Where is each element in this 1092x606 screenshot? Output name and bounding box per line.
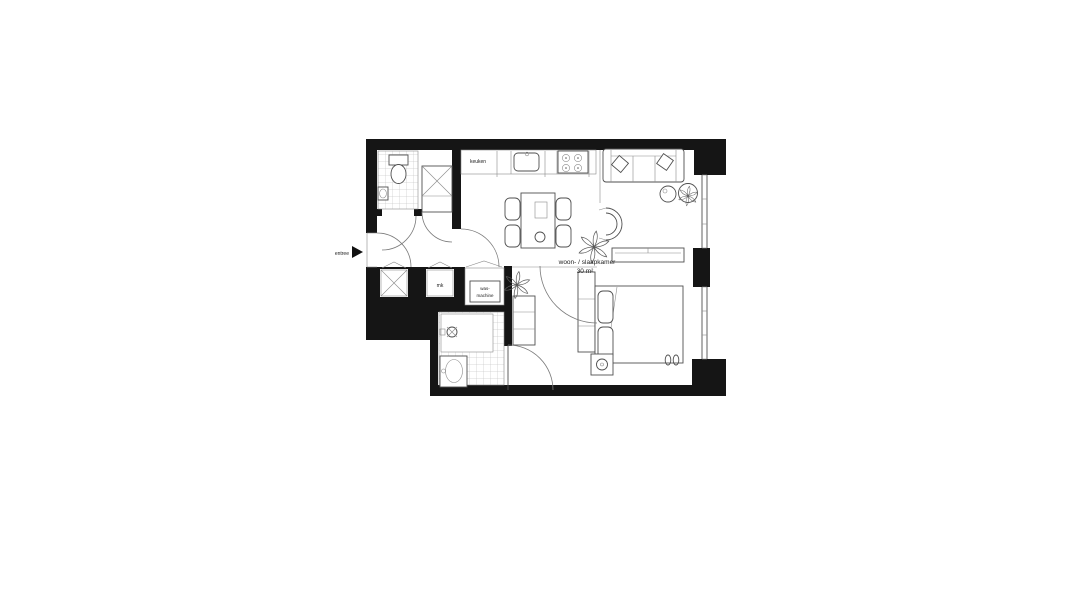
main-room-name: woon- / slaapkamer [558, 259, 617, 266]
stove [558, 151, 588, 173]
washbasin [440, 356, 467, 387]
toilet-door-arc [382, 216, 416, 250]
entrance-opening [367, 233, 377, 267]
nightstand [591, 354, 613, 375]
dining-chair [556, 225, 571, 247]
toilet [389, 155, 408, 184]
wardrobe [578, 272, 595, 352]
tech-closet [422, 166, 452, 212]
pillow [598, 291, 613, 323]
floorplan-canvas: mk was- machine [0, 0, 1092, 606]
dining-chair [505, 198, 520, 220]
bedroom-shelf-unit [513, 296, 535, 345]
bed [595, 286, 683, 363]
kitchen-sink [514, 152, 539, 171]
entrance-marker: entree [335, 246, 363, 258]
sofa [603, 149, 684, 182]
potted-plant [678, 184, 697, 206]
shower [440, 313, 493, 352]
main-room-area: 30 m² [577, 268, 594, 275]
entrance-arrow-icon [352, 246, 363, 258]
kitchen-label: keuken [470, 159, 486, 165]
hall-door-arc [461, 229, 499, 267]
washing-machine-closet: was- machine [465, 261, 504, 305]
entrance-label: entree [335, 251, 349, 257]
dining-chair [556, 198, 571, 220]
closet-door-arc [422, 212, 452, 242]
dining-chair [505, 225, 520, 247]
toilet-room [378, 151, 418, 209]
bathroom [439, 312, 508, 390]
kitchen-counter: keuken [461, 150, 596, 177]
sideboard [612, 248, 684, 262]
dining-table [521, 193, 555, 248]
armchair [599, 208, 622, 240]
bathroom-door-arc [508, 345, 553, 390]
washing-machine-label-line1: was- [480, 286, 490, 291]
washing-machine-label-line2: machine [476, 293, 494, 298]
meter-cupboard-label: mk [437, 283, 444, 289]
side-table [660, 186, 676, 202]
toilet-sink [378, 187, 388, 200]
